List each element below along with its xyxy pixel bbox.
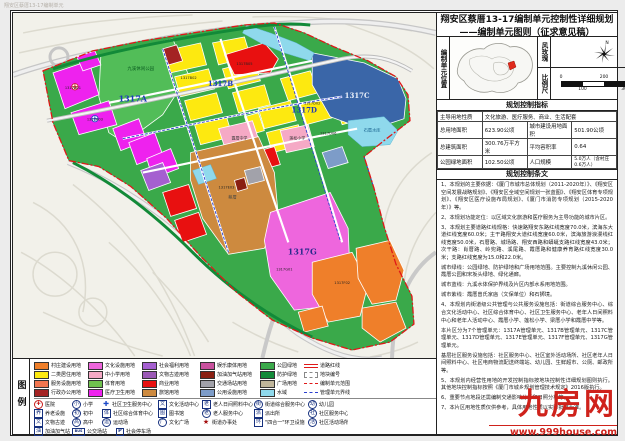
legend-swatch-fill	[34, 371, 49, 379]
wind-rose-label: 风玫瑰	[538, 37, 551, 67]
plan-sheet-page: { "corner_note": "翔安区蔡厝13-17编制单元", "titl…	[0, 0, 625, 441]
运动场-icon: 运	[102, 418, 111, 427]
legend-item: 道路红线	[304, 362, 358, 369]
unit-location-label: 编制单元位置	[437, 37, 450, 99]
幼儿园-icon: 幼	[308, 400, 317, 409]
legend-label: 养老设施	[45, 410, 65, 417]
legend-body: 村庄建设用地文化设施用地社会福利用地娱乐康体用地公园绿地道路红线二类居住用地中小…	[30, 359, 437, 434]
legend-swatch-fill	[200, 380, 215, 388]
legend-label: 文化活动中心	[169, 401, 199, 408]
"四合一"环卫设施-icon: 环	[254, 418, 263, 427]
legend-label: 老人服务中心	[213, 410, 243, 417]
legend-label: 运动场	[113, 419, 128, 426]
indicator-cell: 平均容积率	[527, 139, 572, 156]
provision-paragraph: 4、本规划内街道级公共管理与公共服务设施包括：街道综合服务中心、综合文化活动中心…	[441, 302, 613, 325]
legend-item: 文文化活动中心	[158, 400, 202, 409]
养老设施-icon: 养	[34, 409, 43, 418]
医院-icon: ✚	[34, 400, 43, 409]
legend-label: 文化设施用地	[105, 362, 135, 369]
legend-label: 水域	[277, 389, 287, 396]
provisions-text: 1、本规划的主要依据：《厦门市城市总体规划（2011-2020年）》、《翔安区空…	[437, 180, 617, 417]
corner-note: 翔安区蔡厝13-17编制单元	[4, 2, 64, 9]
社会停车场-icon: P	[116, 428, 124, 436]
legend-label: 派出所	[265, 410, 280, 417]
map-text-label: 蔡厝	[228, 193, 236, 199]
page-subtitle: ——编制单元图则（征求意见稿）	[459, 25, 594, 38]
legend-item: 社社区服务中心	[308, 409, 348, 418]
legend-swatch-fill	[260, 371, 275, 379]
meta-row: 编制单元位置 风玫瑰	[437, 37, 617, 100]
legend-item: 娱乐康体用地	[200, 362, 260, 370]
legend-swatch-fill	[142, 362, 157, 370]
legend-item: BUS公交场站	[72, 428, 116, 436]
provision-paragraph: 2、本规划功能定位：以区域文化旅游和医疗服务为主导功能的城市片区。	[441, 215, 613, 223]
派出所-icon: 派	[254, 409, 263, 418]
legend-label: 社区服务中心	[319, 410, 348, 417]
provision-paragraph: 城市绿线：公园绿地、防护绿地和广场用地范围。主要控制九溪休闲公园、霞厝公园和宋坂…	[441, 265, 613, 280]
legend-item: 编制单元范围	[304, 380, 358, 387]
legend-item: 小小学	[72, 400, 102, 409]
map-text-label: 1317A01	[65, 86, 81, 90]
indicator-cell: 300.76万平方米	[482, 139, 527, 156]
legend-side-label: 图例	[13, 359, 30, 434]
legend-item: 公用设施用地	[200, 389, 260, 397]
legend-item: 地块编号	[304, 371, 358, 378]
legend-label: 街道办事处	[212, 419, 237, 426]
legend-item: 养养老设施	[34, 409, 72, 418]
map-text-label: 1317A03	[87, 118, 103, 122]
legend-label: 公交场站	[87, 428, 107, 435]
街道综合服务中心-icon: 街	[254, 400, 263, 409]
老人服务中心-icon: 老	[202, 409, 211, 418]
watermark: 九房网 www.999house.com	[489, 390, 617, 439]
indicators-title: 规划控制指标	[437, 100, 617, 111]
legend-swatch-fill	[88, 362, 103, 370]
wind-rose-cell: 风玫瑰 N	[538, 37, 625, 68]
legend-item: 体育用地	[88, 380, 142, 388]
legend-label: 小学	[83, 401, 93, 408]
management-unit-label: 1317B	[208, 79, 233, 88]
legend-item: 行政办公用地	[34, 389, 88, 397]
legend-color-rows: 村庄建设用地文化设施用地社会福利用地娱乐康体用地公园绿地道路红线二类居住用地中小…	[34, 361, 437, 397]
legend-label: 社区活动场所	[319, 419, 348, 426]
legend-swatch-dash-blue	[304, 390, 318, 396]
legend-label: 加油加气站用地	[217, 371, 252, 378]
map-text-label: 1317F02	[334, 281, 350, 285]
provision-paragraph: 本片区分为7个管理单元：1317A管理单元、1317B管理单元、1317C管理单…	[441, 328, 613, 351]
legend-label: 道路红线	[320, 362, 340, 369]
legend-label: 服务设施用地	[51, 380, 81, 387]
plan-sheet: 1317A1317B1317C1317D1317G九溪休闲公园石厝水库霞厝中学莲…	[10, 10, 618, 436]
legend-item: ✚社区卫生服务中心	[102, 401, 158, 409]
legend-item: ✚医院	[34, 400, 72, 409]
legend-item: 文物古迹用地	[142, 371, 200, 379]
legend-swatch-fill	[200, 371, 215, 379]
legend-swatch-fill	[142, 389, 157, 397]
legend-item: 老老人服务中心	[202, 409, 254, 418]
legend-item: 防护绿地	[260, 371, 304, 379]
legend-swatch-dashdot-red	[304, 381, 318, 387]
scale-ticks-bottom: 100300	[561, 87, 625, 93]
legend-item: 交通场站用地	[200, 380, 260, 388]
management-unit-label: 1317D	[292, 106, 317, 115]
legend-item: P社会停车场	[116, 428, 160, 436]
provision-paragraph: 城市蓝线：九溪水体保护界线及片区内部水系用地范围。	[441, 282, 613, 290]
社区卫生服务中心-icon: ✚	[102, 401, 110, 409]
legend-item: 村庄建设用地	[34, 362, 88, 370]
map-text-label: 霞厝中学	[232, 136, 248, 141]
legend-label: 广场用地	[277, 380, 297, 387]
legend-item: 老老人日间照料中心	[202, 400, 254, 409]
legend-swatch-road-line	[304, 363, 318, 369]
map-text-label: 1317E03	[219, 185, 235, 189]
legend-item: 水域	[260, 389, 304, 397]
legend-item: 派派出所	[254, 409, 308, 418]
zoning-map-panel: 1317A1317B1317C1317D1317G九溪休闲公园石厝水库霞厝中学莲…	[12, 12, 438, 359]
legend-item: ★街道办事处	[202, 419, 254, 427]
社区服务中心-icon: 社	[308, 409, 317, 418]
legend-swatch-fill	[34, 380, 49, 388]
legend-item: 油加油加气站	[34, 427, 72, 436]
legend-swatch-fill	[142, 371, 157, 379]
legend-item: 社会福利用地	[142, 362, 200, 370]
title-box: 翔安区蔡厝13-17编制单元控制性详细规划 ——编制单元图则（征求意见稿）	[437, 13, 617, 37]
map-text-label: 石厝水库	[364, 127, 381, 133]
legend-label: 体育用地	[105, 380, 125, 387]
legend-item: 文化设施用地	[88, 362, 142, 370]
legend-item: 加油加气站用地	[200, 371, 260, 379]
legend-label: 村庄建设用地	[51, 362, 81, 369]
社区综合体育中心-icon: 体	[102, 409, 111, 418]
map-text-label: 1317G01	[276, 267, 292, 271]
map-text-label: 1317D02	[304, 102, 320, 106]
legend-label: 社会停车场	[126, 428, 151, 435]
map-text-label: 莲松小学	[289, 136, 305, 141]
management-unit-label: 1317A	[119, 95, 148, 104]
加油加气站-icon: 油	[34, 427, 43, 436]
legend-item: 文文物古迹	[34, 418, 72, 427]
legend-label: 街道综合服务中心	[265, 401, 305, 408]
indicator-cell: 0.64	[572, 139, 617, 156]
legend-item: 医疗卫生用地	[88, 389, 142, 397]
legend-label: 二类居住用地	[51, 371, 81, 378]
legend-item: 图图书馆	[158, 409, 202, 418]
map-text-label: 1317D06	[320, 132, 337, 136]
legend-swatch-fill	[88, 380, 103, 388]
文化广场-icon: 广	[158, 418, 167, 427]
legend-item: 广场用地	[260, 380, 304, 388]
wind-rose: N	[551, 37, 625, 67]
north-label: N	[605, 40, 608, 46]
legend-swatch-fill	[260, 362, 275, 370]
zoning-map: 1317A1317B1317C1317D1317G九溪休闲公园石厝水库霞厝中学莲…	[13, 13, 437, 358]
legend-item: 运运动场	[102, 418, 158, 427]
provisions-title: 规划控制条文	[437, 169, 617, 180]
公交场站-icon: BUS	[72, 428, 85, 436]
legend-label: 老人日间照料中心	[213, 401, 253, 408]
老人日间照料中心-icon: 老	[202, 400, 211, 409]
provision-paragraph: 城市紫线：霞厝曾氏家庙（文保单位）和石狮境。	[441, 292, 613, 300]
indicators-table: 主导用地性质文化旅游、医疗服务、商业、生活配套总用地面积623.90公顷城市建设…	[437, 111, 617, 169]
legend-item: 旅馆用地	[142, 389, 200, 397]
legend-item: 体社区综合体育中心	[102, 409, 158, 418]
高中-icon: 高	[72, 418, 81, 427]
map-text-label: 九溪休闲公园	[127, 65, 154, 72]
indicator-cell: 总建筑面积	[438, 139, 483, 156]
indicator-cell: 501.90公顷	[572, 122, 617, 139]
unit-location-map	[450, 37, 537, 99]
legend-swatch-fill	[34, 389, 49, 397]
legend-label: 医院	[45, 401, 55, 408]
indicator-cell: 人口规模	[527, 156, 572, 169]
legend-item: 活社区活动场所	[308, 418, 348, 427]
legend-label: 图书馆	[169, 410, 184, 417]
indicator-cell: 623.90公顷	[482, 122, 527, 139]
legend-swatch-fill	[88, 389, 103, 397]
legend-swatch-fill	[200, 389, 215, 397]
indicator-cell: 主导用地性质	[438, 112, 483, 122]
legend-item: 环"四合一"环卫设施	[254, 418, 308, 427]
scale-cell: 比例尺 0200400m 100300	[538, 68, 625, 99]
legend-item: 二类居住用地	[34, 371, 88, 379]
legend-swatch-fill	[88, 371, 103, 379]
legend-swatch-fill	[200, 362, 215, 370]
legend-item: 公园绿地	[260, 362, 304, 370]
legend-label: 管理单元界线	[320, 389, 350, 396]
scale-bar: 0200400m 100300	[551, 68, 625, 99]
初中-icon: 初	[72, 409, 81, 418]
legend-label: 中小学用地	[105, 371, 130, 378]
rose-scale-cells: 风玫瑰 N 比例尺	[538, 37, 625, 99]
legend-item: 管理单元界线	[304, 389, 358, 396]
legend-label: 社会福利用地	[159, 362, 189, 369]
map-text-label: 1317B02	[181, 76, 197, 80]
legend-label: 加油加气站	[45, 428, 70, 435]
legend-label: 社区综合体育中心	[113, 410, 153, 417]
provision-paragraph: 基层社区服务设施包括：社区服务中心、社区室外活动场所、社区老年人日间照料中心、社…	[441, 353, 613, 376]
wind-rose-icon	[594, 43, 615, 63]
legend-label: 文物古迹	[45, 419, 65, 426]
legend-label: 编制单元范围	[320, 380, 350, 387]
legend-label: 社区卫生服务中心	[112, 401, 152, 408]
unit-location-cell: 编制单元位置	[437, 37, 538, 99]
watermark-logo: 九房网	[489, 390, 617, 420]
legend-swatch-fill	[260, 389, 275, 397]
legend-label: 旅馆用地	[159, 389, 179, 396]
scale-ticks-top: 0200400m	[561, 75, 625, 81]
provision-paragraph: 1、本规划的主要依据：《厦门市城市总体规划（2011-2020年）》、《翔安区空…	[441, 182, 613, 212]
legend-item: 广文化广场	[158, 418, 202, 427]
legend-swatch-fill	[260, 380, 275, 388]
社区活动场所-icon: 活	[308, 418, 317, 427]
indicator-cell: 5.0万人（含村庄0.6万人）	[572, 156, 617, 169]
legend-item: 服务设施用地	[34, 380, 88, 388]
legend-label: 幼儿园	[319, 401, 334, 408]
legend-icon-rows: ✚医院小小学✚社区卫生服务中心文文化活动中心老老人日间照料中心街街道综合服务中心…	[34, 398, 437, 436]
legend-label: 公用设施用地	[217, 389, 247, 396]
indicator-cell: 102.50公顷	[482, 156, 527, 169]
legend-label: 交通场站用地	[217, 380, 247, 387]
watermark-url[interactable]: www.999house.com	[489, 425, 617, 438]
map-text-label: 1317B05	[236, 62, 252, 66]
legend-label: 商业用地	[159, 380, 179, 387]
legend-item: 幼幼儿园	[308, 400, 348, 409]
文化活动中心-icon: 文	[158, 400, 167, 409]
indicator-cell: 文化旅游、医疗服务、商业、生活配套	[482, 112, 616, 122]
legend-swatch-fill	[34, 362, 49, 370]
info-panel: 翔安区蔡厝13-17编制单元控制性详细规划 ——编制单元图则（征求意见稿） 编制…	[436, 12, 618, 435]
management-unit-label: 1317C	[345, 91, 370, 100]
legend-label: 医疗卫生用地	[105, 389, 135, 396]
图书馆-icon: 图	[158, 409, 167, 418]
文物古迹-icon: 文	[34, 418, 43, 427]
legend-label: 公园绿地	[277, 362, 297, 369]
legend-item: 初初中	[72, 409, 102, 418]
indicator-cell: 公园绿地面积	[438, 156, 483, 169]
legend-panel: 图例 村庄建设用地文化设施用地社会福利用地娱乐康体用地公园绿地道路红线二类居住用…	[12, 358, 438, 435]
legend-item: 中小学用地	[88, 371, 142, 379]
legend-label: 行政办公用地	[51, 389, 81, 396]
legend-label: 初中	[83, 410, 93, 417]
legend-label: 文物古迹用地	[159, 371, 189, 378]
legend-swatch-dash-box	[304, 372, 318, 378]
management-unit-label: 1317G	[288, 247, 317, 256]
legend-label: 文化广场	[169, 419, 189, 426]
indicator-cell: 总用地面积	[438, 122, 483, 139]
provision-paragraph: 3、本规划主要道路红线规格：快速路翔安东路红线宽度70.0米，滨海东大道红线宽度…	[441, 225, 613, 263]
legend-item: 街街道综合服务中心	[254, 400, 308, 409]
legend-label: 娱乐康体用地	[217, 362, 247, 369]
indicator-cell: 城市建设用地面积	[527, 122, 572, 139]
legend-label: 地块编号	[320, 371, 340, 378]
legend-label: "四合一"环卫设施	[265, 419, 305, 426]
legend-item: 商业用地	[142, 380, 200, 388]
小学-icon: 小	[72, 400, 81, 409]
legend-label: 高中	[83, 419, 93, 426]
page-title: 翔安区蔡厝13-17编制单元控制性详细规划	[441, 12, 614, 25]
legend-label: 防护绿地	[277, 371, 297, 378]
legend-item: 高高中	[72, 418, 102, 427]
scale-label: 比例尺	[538, 68, 551, 99]
legend-swatch-fill	[142, 380, 157, 388]
街道办事处-icon: ★	[202, 419, 210, 427]
